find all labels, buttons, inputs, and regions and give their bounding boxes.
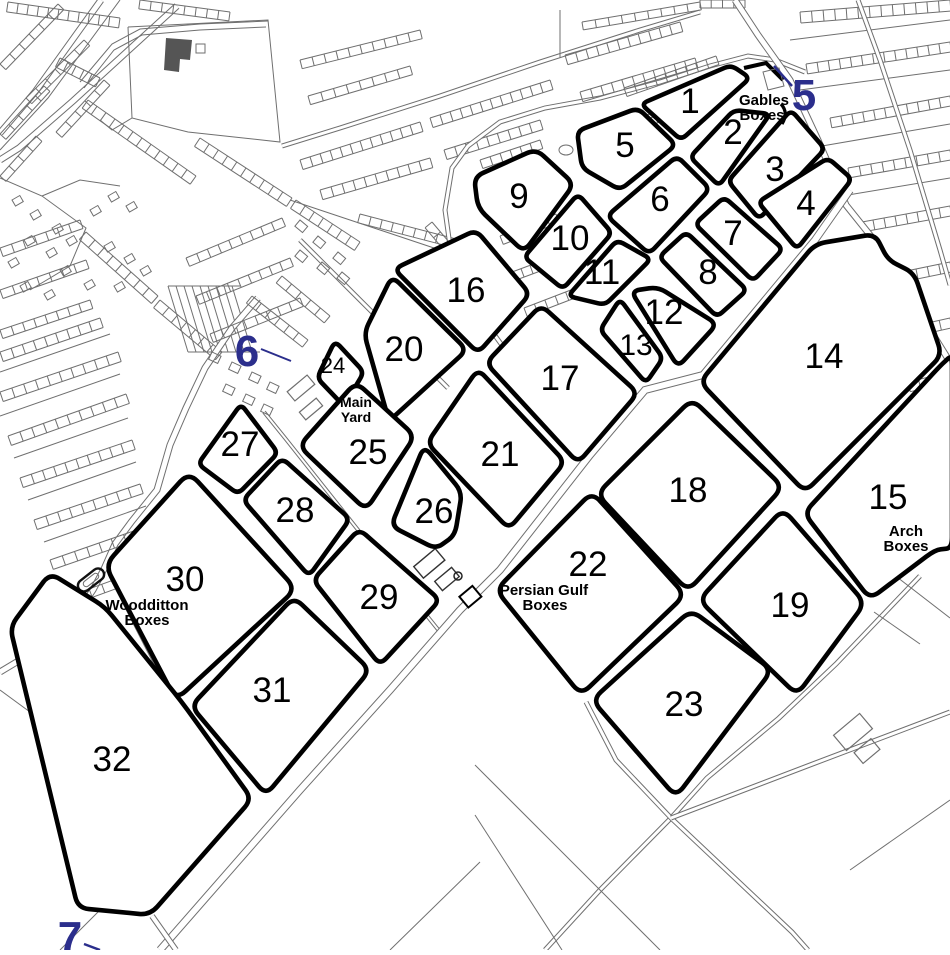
svg-text:24: 24 — [321, 353, 345, 378]
svg-text:5: 5 — [792, 71, 816, 120]
svg-text:29: 29 — [360, 578, 399, 617]
svg-text:7: 7 — [723, 214, 742, 253]
svg-text:Boxes: Boxes — [739, 107, 784, 124]
svg-text:19: 19 — [771, 586, 810, 625]
svg-text:32: 32 — [93, 740, 132, 779]
svg-text:6: 6 — [650, 180, 669, 219]
svg-text:Yard: Yard — [341, 409, 371, 425]
svg-text:Boxes: Boxes — [124, 612, 169, 629]
svg-text:5: 5 — [615, 126, 634, 165]
svg-text:22: 22 — [569, 545, 608, 584]
svg-text:16: 16 — [447, 271, 486, 310]
svg-text:15: 15 — [869, 478, 908, 517]
svg-text:6: 6 — [235, 327, 259, 376]
svg-text:25: 25 — [349, 433, 388, 472]
svg-text:26: 26 — [415, 492, 454, 531]
svg-text:28: 28 — [276, 491, 315, 530]
svg-text:12: 12 — [645, 293, 684, 332]
svg-text:8: 8 — [698, 253, 717, 292]
svg-text:31: 31 — [253, 671, 292, 710]
svg-text:3: 3 — [765, 150, 784, 189]
svg-text:Boxes: Boxes — [883, 538, 928, 555]
svg-text:17: 17 — [541, 359, 580, 398]
svg-text:13: 13 — [619, 329, 652, 362]
svg-text:21: 21 — [481, 435, 520, 474]
svg-text:Boxes: Boxes — [522, 597, 567, 614]
svg-text:20: 20 — [385, 330, 424, 369]
svg-text:7: 7 — [58, 913, 82, 950]
svg-text:11: 11 — [584, 253, 620, 292]
svg-text:4: 4 — [796, 184, 815, 223]
svg-text:Main: Main — [340, 394, 372, 410]
svg-text:9: 9 — [509, 177, 528, 216]
svg-text:14: 14 — [805, 337, 844, 376]
svg-text:27: 27 — [221, 425, 260, 464]
svg-text:30: 30 — [166, 560, 205, 599]
svg-text:1: 1 — [680, 82, 699, 121]
svg-text:23: 23 — [665, 685, 704, 724]
svg-text:18: 18 — [669, 471, 708, 510]
